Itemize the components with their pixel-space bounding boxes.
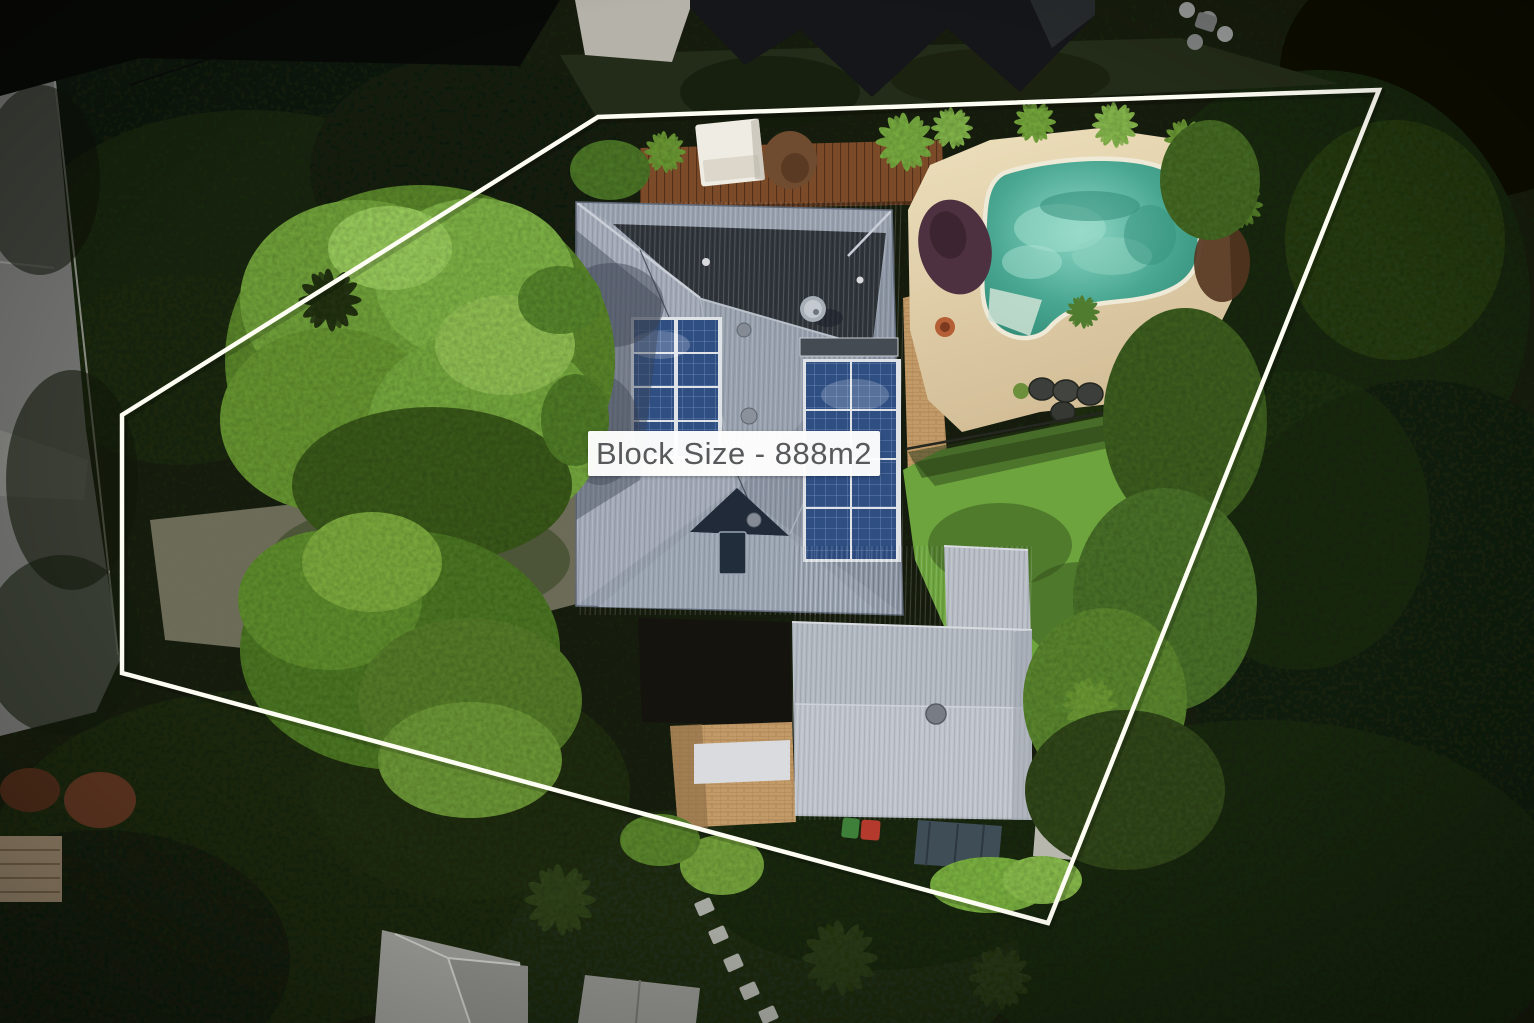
vignette (0, 0, 1534, 1023)
aerial-photo-canvas (0, 0, 1534, 1023)
block-size-label: Block Size - 888m2 (588, 431, 880, 476)
block-size-text: Block Size - 888m2 (596, 436, 872, 472)
aerial-photo: Block Size - 888m2 (0, 0, 1534, 1023)
